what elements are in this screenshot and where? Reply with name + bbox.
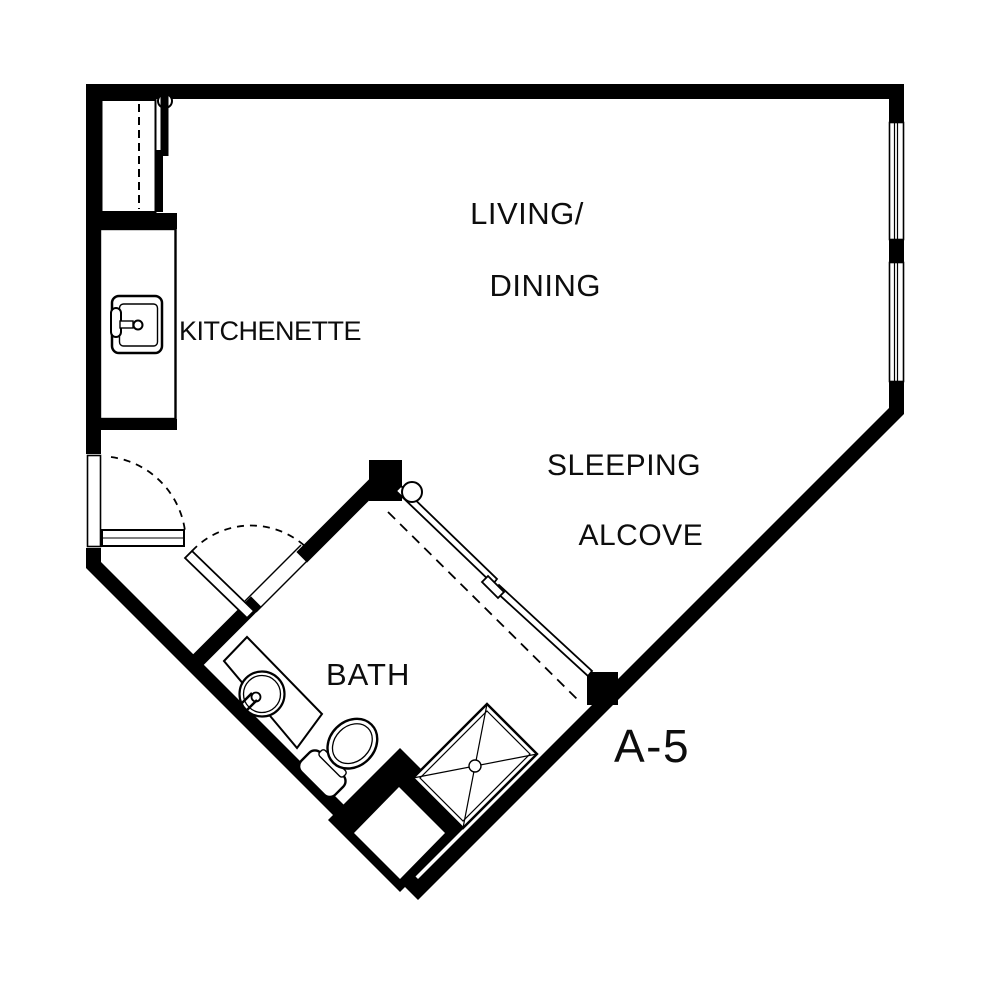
closet-door-panel-1 [161,92,169,156]
bath-label: BATH [326,657,410,693]
bath-door-swing-arc [192,526,308,551]
bath-nw-wall-upper [307,481,378,552]
slider-panel-2 [494,585,592,676]
counter-end-wall [99,419,177,430]
window-upper [885,122,906,240]
kitchenette-label: KITCHENETTE [179,316,361,347]
lavatory-drain-dot [244,710,248,714]
sleeping-line2: ALCOVE [578,519,703,552]
floor-plan-drawing [0,0,989,998]
window-lower [885,262,906,382]
entry-closet [99,92,177,229]
living-dining-label: LIVING/ DINING [453,196,601,304]
entry-door [83,454,185,548]
closet-bottom-wall [99,213,177,229]
bath-door [185,526,308,618]
closet-box [102,100,156,212]
bath-vanity [224,637,322,748]
bath-door-leaf [185,551,254,618]
floor-plan: LIVING/ DINING KITCHENETTE SLEEPING ALCO… [0,0,989,998]
shower-drain [469,760,481,772]
living-line1: LIVING/ [470,196,584,231]
lavatory-outer [240,672,285,717]
faucet-base [134,321,143,330]
kitchenette-counter [99,229,177,430]
living-line2: DINING [489,268,601,303]
faucet-spout [120,321,133,328]
closet-door-panel-2 [156,150,163,212]
bath-door-opening-edge-1 [245,545,301,601]
sleeping-line1: SLEEPING [547,449,701,482]
kitchen-sink [111,296,162,353]
entry-door-swing-arc [111,457,185,531]
sleeping-alcove-label: SLEEPING ALCOVE [545,448,703,553]
unit-label: A-5 [614,719,690,773]
slider-end-wall-stub [587,672,618,705]
entry-frame [88,456,101,547]
bath-door-opening-edge-2 [256,556,312,612]
slider-end-roller [402,482,422,502]
